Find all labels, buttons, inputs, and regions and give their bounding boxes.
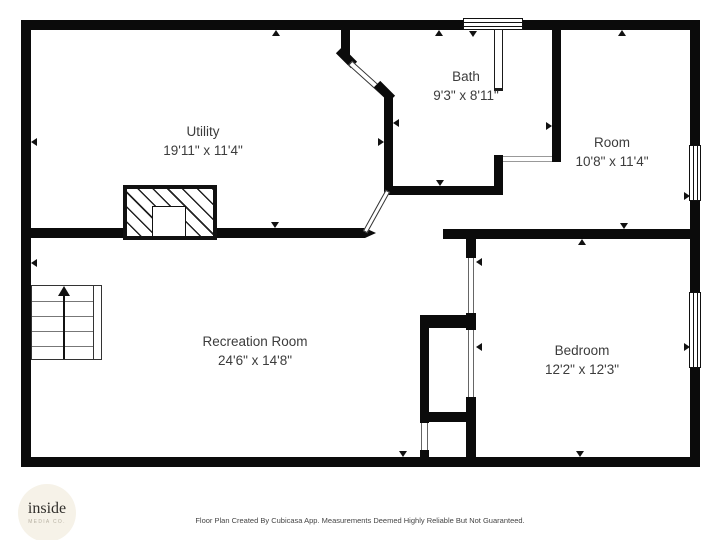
tick-arrow-icon <box>378 138 384 146</box>
stairs-symbol <box>31 285 102 360</box>
room-dims: 10'8" x 11'4" <box>575 152 648 171</box>
exterior-wall-left <box>21 20 31 467</box>
stair-rail <box>93 286 94 359</box>
tick-arrow-icon <box>399 451 407 457</box>
tick-arrow-icon <box>684 343 690 351</box>
window-symbol-room <box>689 145 701 201</box>
exterior-wall-bottom <box>21 457 700 467</box>
window-pane-line <box>464 22 522 23</box>
window-pane-line <box>464 26 522 27</box>
wall-room-left <box>552 30 561 162</box>
footer-disclaimer: Floor Plan Created By Cubicasa App. Meas… <box>0 516 720 525</box>
chimney-symbol <box>123 185 217 240</box>
tick-arrow-icon <box>271 222 279 228</box>
wall-bath-step <box>494 155 503 191</box>
room-name: Recreation Room <box>202 332 307 351</box>
floorplan-canvas: Utility 19'11" x 11'4" Bath 9'3" x 8'11"… <box>0 0 720 540</box>
exterior-wall-right <box>690 20 700 467</box>
wall-bedroom-door-stub <box>466 239 476 258</box>
room-label-recreation: Recreation Room 24'6" x 14'8" <box>202 332 307 370</box>
room-dims: 12'2" x 12'3" <box>545 360 619 379</box>
logo-text: inside <box>28 501 66 517</box>
wall-bath-bottom <box>384 186 503 195</box>
tick-arrow-icon <box>31 259 37 267</box>
tick-arrow-icon <box>684 192 690 200</box>
room-dims: 9'3" x 8'11" <box>433 86 499 105</box>
room-dims: 24'6" x 14'8" <box>202 351 307 370</box>
tick-arrow-icon <box>436 180 444 186</box>
tick-arrow-icon <box>576 451 584 457</box>
room-name: Bath <box>433 67 499 86</box>
chimney-flue <box>152 206 186 237</box>
window-pane-line <box>693 146 694 200</box>
stair-direction-line <box>63 294 65 359</box>
room-label-room: Room 10'8" x 11'4" <box>575 133 648 171</box>
wall-closet-left <box>420 315 429 423</box>
room-label-utility: Utility 19'11" x 11'4" <box>163 122 243 160</box>
window-pane-line <box>697 146 698 200</box>
room-label-bath: Bath 9'3" x 8'11" <box>433 67 499 105</box>
room-name: Utility <box>163 122 243 141</box>
doorway-closet-lower <box>421 423 428 450</box>
room-name: Bedroom <box>545 341 619 360</box>
window-symbol-bedroom <box>689 292 701 368</box>
window-pane-line <box>697 293 698 367</box>
tick-arrow-icon <box>476 343 482 351</box>
doorway-threshold-room <box>503 156 552 157</box>
wall-bedroom-west-lower <box>466 397 476 457</box>
wall-bath-left <box>384 95 393 195</box>
doorway-bedroom <box>468 258 474 313</box>
tick-arrow-icon <box>435 30 443 36</box>
tick-arrow-icon <box>272 30 280 36</box>
wall-closet-foot <box>420 450 429 458</box>
stair-up-arrow-icon <box>58 286 70 296</box>
wall-room-bedroom <box>443 229 690 239</box>
window-symbol-top <box>463 18 523 30</box>
tick-arrow-icon <box>618 30 626 36</box>
room-name: Room <box>575 133 648 152</box>
doorway-threshold-room <box>503 161 552 162</box>
tick-arrow-icon <box>393 119 399 127</box>
tick-arrow-icon <box>546 122 552 130</box>
tick-arrow-icon <box>578 239 586 245</box>
exterior-wall-top-left <box>21 20 463 30</box>
media-logo: inside MEDIA CO. <box>18 484 76 540</box>
tick-arrow-icon <box>620 223 628 229</box>
room-dims: 19'11" x 11'4" <box>163 141 243 160</box>
window-pane-line <box>693 293 694 367</box>
door-leaf-hall <box>363 190 390 234</box>
doorway-closet <box>468 330 474 397</box>
wall-closet-bottom <box>420 412 467 422</box>
room-label-bedroom: Bedroom 12'2" x 12'3" <box>545 341 619 379</box>
tick-arrow-icon <box>469 31 477 37</box>
exterior-wall-top-right <box>523 20 700 30</box>
tick-arrow-icon <box>31 138 37 146</box>
tick-arrow-icon <box>476 258 482 266</box>
